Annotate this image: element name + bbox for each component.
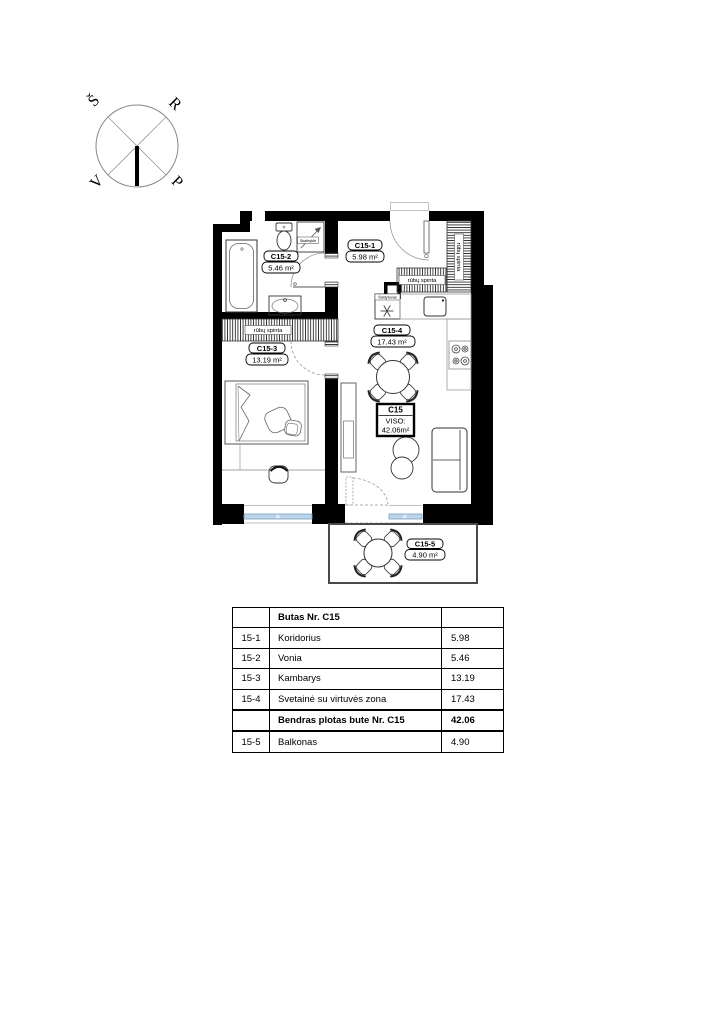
- room-label-c15-1: C15-1 5.98 m²: [346, 240, 384, 262]
- bed-icon: [225, 381, 308, 444]
- room-name: Koridorius: [270, 628, 442, 648]
- svg-text:C15-4: C15-4: [382, 326, 403, 335]
- balcony-rail: [329, 524, 477, 583]
- kitchen-living: Šaldytuvas: [341, 294, 471, 492]
- balcony-door: [345, 477, 388, 523]
- room-area: 5.98: [442, 628, 504, 648]
- room-area: 4.90: [442, 731, 504, 752]
- compass-rose: Š R V P: [83, 90, 186, 192]
- kitchen-counter: [447, 319, 471, 390]
- dining-table-icon: [377, 361, 410, 394]
- bathtub-icon: [226, 240, 257, 312]
- svg-text:C15-5: C15-5: [415, 539, 435, 548]
- table-row: 15-2 Vonia 5.46: [233, 648, 504, 668]
- svg-text:C15-1: C15-1: [355, 241, 375, 250]
- compass-east-label: R: [165, 94, 185, 114]
- room-number: 15-5: [233, 731, 270, 752]
- svg-text:5.46 m²: 5.46 m²: [268, 264, 294, 273]
- dining-set: [366, 350, 420, 404]
- total-label: Bendras plotas bute Nr. C15: [270, 710, 442, 731]
- wardrobe-label: rūbų spinta: [455, 243, 461, 272]
- room-area: 17.43: [442, 689, 504, 710]
- compass-north-label: Š: [83, 90, 103, 110]
- room-number: 15-3: [233, 669, 270, 689]
- room-area: 5.46: [442, 648, 504, 668]
- room-number: 15-4: [233, 689, 270, 710]
- svg-text:C15-3: C15-3: [257, 344, 277, 353]
- floor-plan-drawing: Š R V P: [0, 0, 724, 1024]
- svg-text:13.19 m²: 13.19 m²: [252, 356, 282, 365]
- table-total-row: Bendras plotas bute Nr. C15 42.06: [233, 710, 504, 731]
- room-label-c15-2: C15-2 5.46 m²: [262, 251, 300, 273]
- balcony: [329, 524, 477, 583]
- compass-south-label: P: [168, 173, 186, 191]
- total-area: 42.06: [442, 710, 504, 731]
- svg-text:5.98 m²: 5.98 m²: [352, 253, 378, 262]
- sofa-icon: [432, 428, 467, 492]
- toilet-icon: [276, 223, 292, 250]
- tv-unit-icon: [341, 383, 356, 472]
- stove-icon: [449, 341, 471, 369]
- wardrobes: rūbų spinta rūbų spinta rūbų spinta: [222, 221, 471, 341]
- bedroom-door: [291, 341, 338, 379]
- wardrobe-label: rūbų spinta: [254, 328, 283, 334]
- washer-label: Skalbyklė: [300, 239, 316, 243]
- table-cell: [442, 608, 504, 628]
- table-cell: [233, 608, 270, 628]
- room-number: [233, 710, 270, 731]
- room-label-c15-5: C15-5 4.90 m²: [405, 539, 445, 560]
- balcony-dining-set: [352, 527, 404, 579]
- room-name: Kambarys: [270, 669, 442, 689]
- svg-text:C15: C15: [388, 406, 403, 415]
- area-table: Butas Nr. C15 15-1 Koridorius 5.98 15-2 …: [232, 607, 504, 753]
- fridge-label: Šaldytuvas: [378, 295, 397, 300]
- kitchen-sink-icon: [424, 297, 446, 316]
- wardrobe-label: rūbų spinta: [408, 278, 437, 284]
- table-row: 15-3 Kambarys 13.19: [233, 669, 504, 689]
- table-row: 15-1 Koridorius 5.98: [233, 628, 504, 648]
- svg-text:C15-2: C15-2: [271, 252, 291, 261]
- table-title: Butas Nr. C15: [270, 608, 442, 628]
- room-name: Vonia: [270, 648, 442, 668]
- balcony-table-icon: [364, 539, 392, 567]
- room-label-c15-4: C15-4 17.43 m²: [371, 325, 415, 347]
- table-row: 15-5 Balkonas 4.90: [233, 731, 504, 752]
- washing-machine-icon: Skalbyklė: [297, 222, 324, 252]
- bedroom-chair-icon: [269, 466, 288, 483]
- svg-text:42.06m²: 42.06m²: [382, 426, 410, 435]
- apartment-total-box: C15 VISO: 42.06m²: [377, 404, 414, 436]
- room-number: 15-1: [233, 628, 270, 648]
- table-header-row: Butas Nr. C15: [233, 608, 504, 628]
- room-area: 13.19: [442, 669, 504, 689]
- room-name: Svetainė su virtuvės zona: [270, 689, 442, 710]
- coffee-table-icon: [391, 457, 413, 479]
- svg-text:17.43 m²: 17.43 m²: [377, 338, 407, 347]
- svg-text:VISO:: VISO:: [385, 417, 405, 426]
- room-number: 15-2: [233, 648, 270, 668]
- svg-text:4.90 m²: 4.90 m²: [412, 551, 438, 560]
- living-window: [389, 506, 422, 524]
- room-label-c15-3: C15-3 13.19 m²: [246, 343, 288, 365]
- bedroom-window: [244, 506, 312, 524]
- fridge-icon: Šaldytuvas: [375, 294, 400, 319]
- table-row: 15-4 Svetainė su virtuvės zona 17.43: [233, 689, 504, 710]
- compass-west-label: V: [87, 172, 108, 193]
- entrance-door: [390, 203, 429, 261]
- room-name: Balkonas: [270, 731, 442, 752]
- entrance-threshold: [391, 203, 429, 211]
